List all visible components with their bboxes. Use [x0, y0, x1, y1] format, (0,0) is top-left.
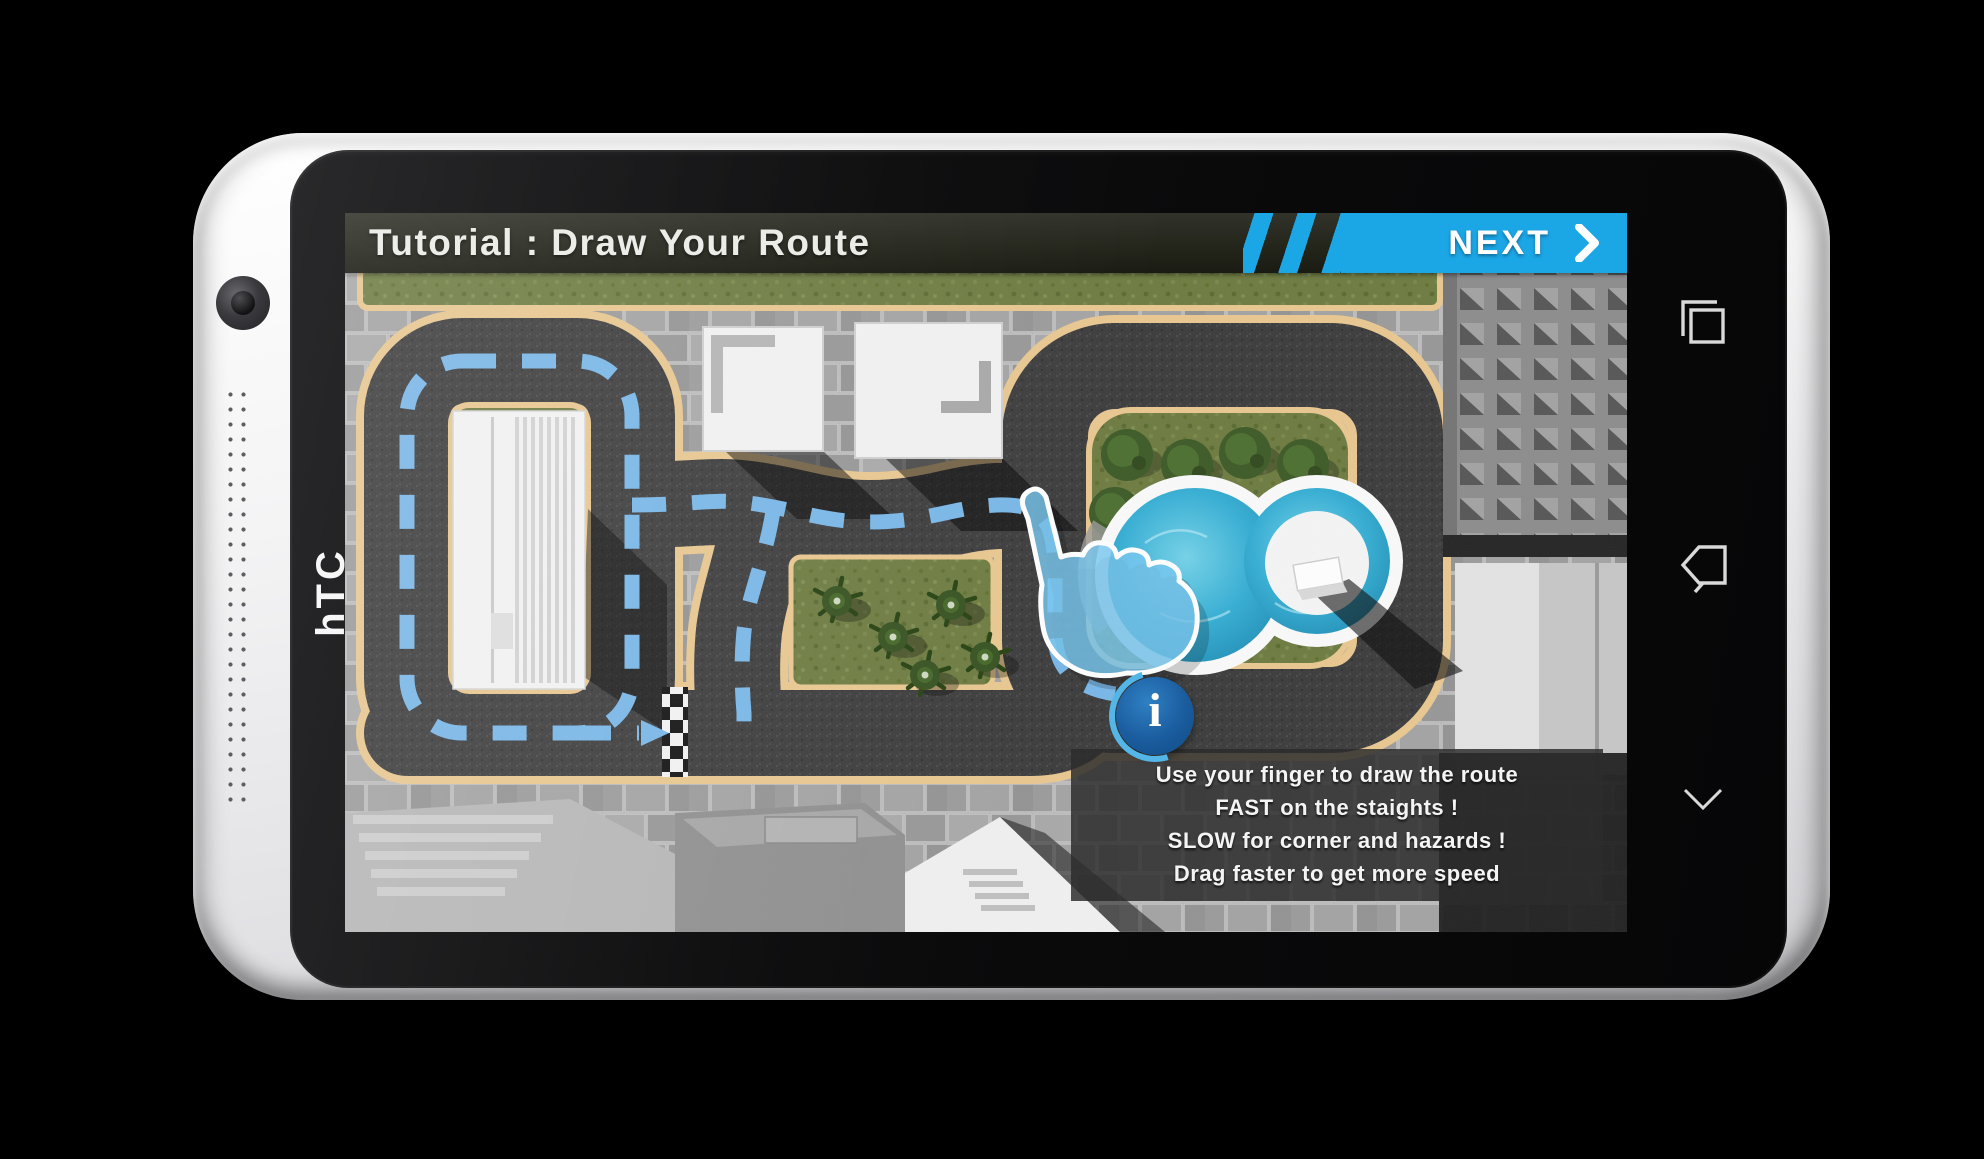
back-icon[interactable] — [1673, 535, 1733, 595]
screen-glass: hTC — [290, 150, 1787, 988]
next-button-stripes — [1243, 213, 1341, 273]
tooltip-line: SLOW for corner and hazards ! — [1071, 824, 1603, 857]
android-nav-bar — [1627, 150, 1787, 988]
tooltip-line: FAST on the staights ! — [1071, 791, 1603, 824]
speaker-grille — [222, 385, 249, 805]
info-icon[interactable]: i — [1116, 677, 1194, 755]
front-camera-icon — [216, 276, 270, 330]
tutorial-tooltip: Use your finger to draw the route FAST o… — [1071, 749, 1603, 901]
collapse-chevron-icon[interactable] — [1673, 770, 1733, 830]
game-screen: Tutorial : Draw Your Route NEXT i Use — [345, 213, 1627, 932]
recent-apps-icon[interactable] — [1673, 292, 1733, 352]
phone-body: hTC — [193, 133, 1830, 1000]
page-title: Tutorial : Draw Your Route — [369, 213, 871, 273]
scene-background: hTC — [0, 0, 1984, 1159]
chevron-right-icon — [1575, 224, 1599, 262]
tooltip-line: Drag faster to get more speed — [1071, 857, 1603, 890]
next-button[interactable]: NEXT — [1243, 213, 1627, 273]
next-button-label: NEXT — [1448, 224, 1551, 263]
tooltip-line: Use your finger to draw the route — [1071, 758, 1603, 791]
